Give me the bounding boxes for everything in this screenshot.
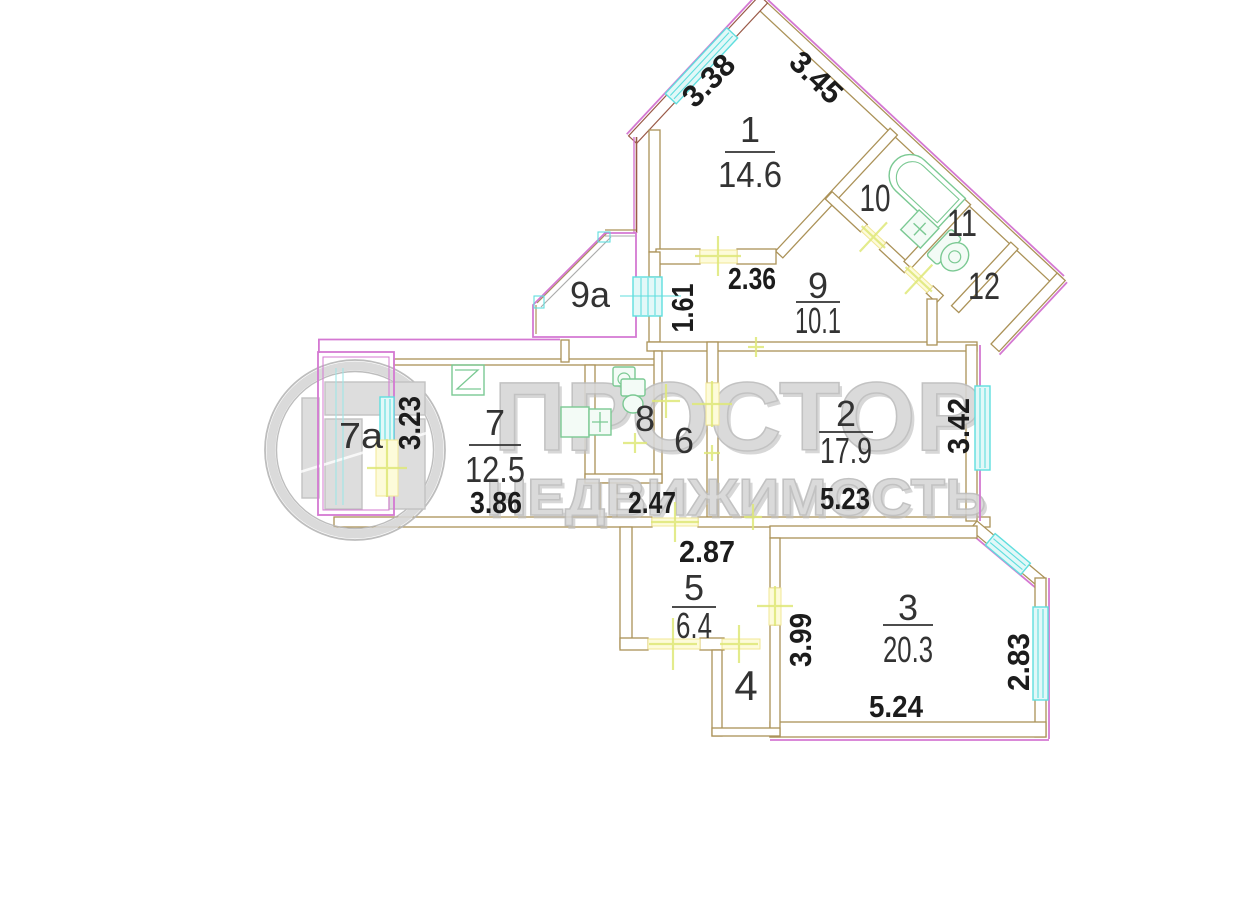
svg-text:9а: 9а: [570, 274, 611, 315]
svg-text:3.42: 3.42: [941, 398, 976, 454]
svg-text:8: 8: [635, 398, 655, 439]
svg-text:5.23: 5.23: [820, 481, 870, 516]
svg-text:4: 4: [734, 662, 757, 709]
svg-text:2.36: 2.36: [728, 261, 776, 296]
svg-text:5.24: 5.24: [869, 689, 924, 724]
svg-text:1: 1: [740, 109, 760, 150]
svg-text:7а: 7а: [339, 415, 384, 456]
svg-text:1.61: 1.61: [665, 284, 700, 333]
svg-text:2.47: 2.47: [628, 485, 676, 520]
svg-text:12: 12: [968, 266, 1000, 308]
svg-text:3: 3: [898, 587, 918, 628]
svg-text:10: 10: [860, 178, 891, 220]
svg-text:6: 6: [674, 420, 694, 461]
svg-text:7: 7: [485, 402, 505, 443]
svg-text:2: 2: [836, 393, 856, 434]
svg-text:20.3: 20.3: [883, 629, 933, 670]
svg-text:6.4: 6.4: [676, 605, 712, 646]
svg-text:11: 11: [947, 203, 977, 245]
svg-text:2.83: 2.83: [1001, 633, 1036, 691]
svg-text:10.1: 10.1: [795, 300, 841, 341]
svg-text:НЕДВИЖИМОСТЬ: НЕДВИЖИМОСТЬ: [486, 469, 986, 527]
svg-text:3.99: 3.99: [783, 613, 818, 667]
svg-text:12.5: 12.5: [465, 449, 525, 490]
svg-text:3.86: 3.86: [470, 485, 522, 520]
svg-text:5: 5: [684, 567, 704, 608]
svg-text:3.23: 3.23: [392, 396, 427, 450]
svg-text:17.9: 17.9: [820, 430, 872, 471]
svg-text:2.87: 2.87: [679, 534, 735, 569]
svg-text:14.6: 14.6: [718, 154, 782, 195]
